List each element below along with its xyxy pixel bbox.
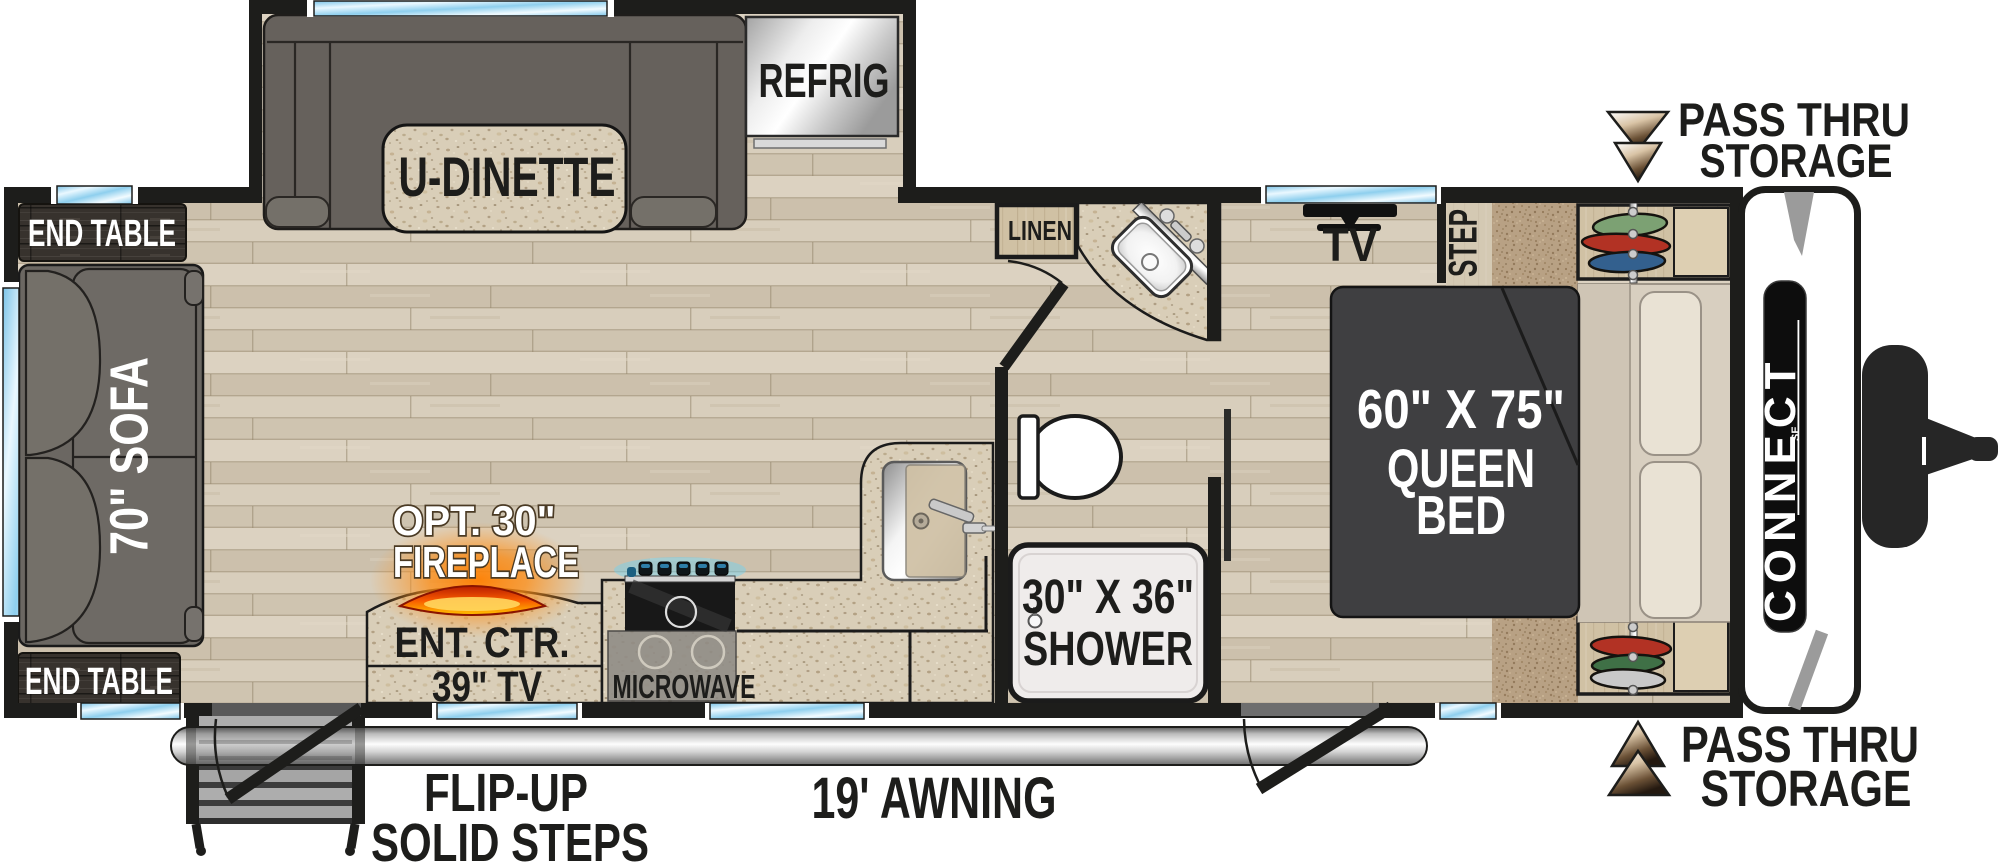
- svg-text:MICROWAVE: MICROWAVE: [613, 668, 756, 705]
- svg-text:U-DINETTE: U-DINETTE: [399, 145, 616, 208]
- svg-text:REFRIG: REFRIG: [759, 55, 890, 108]
- svg-text:END TABLE: END TABLE: [25, 661, 173, 703]
- svg-text:60" X 75": 60" X 75": [1357, 378, 1565, 440]
- svg-text:19' AWNING: 19' AWNING: [812, 766, 1057, 831]
- svg-text:STEP: STEP: [1442, 209, 1486, 277]
- svg-text:FIREPLACE: FIREPLACE: [393, 538, 579, 587]
- svg-text:SHOWER: SHOWER: [1023, 623, 1193, 676]
- svg-text:ENT. CTR.: ENT. CTR.: [395, 619, 570, 667]
- svg-text:STORAGE: STORAGE: [1701, 760, 1912, 817]
- svg-text:70" SOFA: 70" SOFA: [99, 357, 159, 555]
- svg-text:LINEN: LINEN: [1008, 215, 1072, 246]
- svg-text:SE: SE: [1790, 426, 1802, 441]
- svg-text:OPT. 30": OPT. 30": [393, 497, 556, 544]
- svg-text:END TABLE: END TABLE: [28, 213, 176, 255]
- svg-text:SOLID STEPS: SOLID STEPS: [371, 813, 649, 863]
- svg-text:TV: TV: [1323, 218, 1379, 271]
- svg-text:STORAGE: STORAGE: [1700, 134, 1893, 187]
- svg-text:BED: BED: [1416, 484, 1506, 546]
- svg-text:30" X 36": 30" X 36": [1022, 571, 1194, 624]
